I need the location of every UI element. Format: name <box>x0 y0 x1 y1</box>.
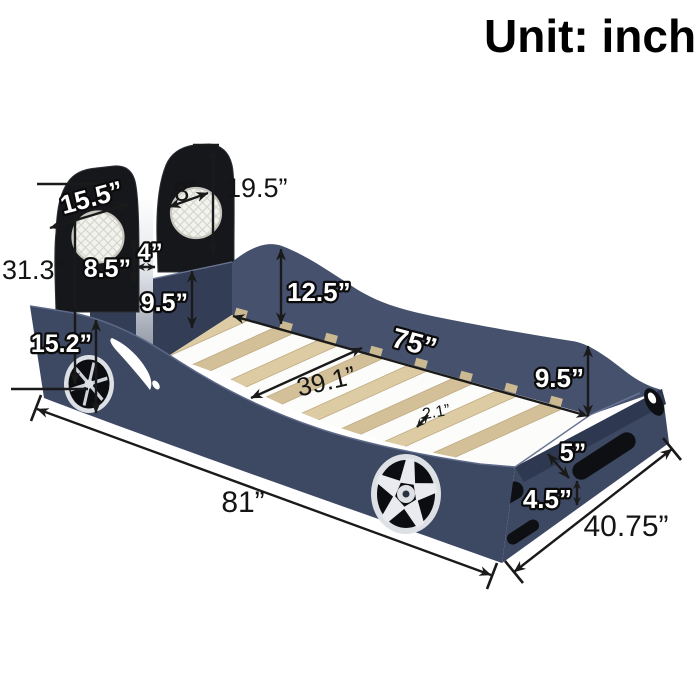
label-side-rail-height: 12.5” <box>287 277 351 307</box>
car-bed-diagram: 31.3” 15.5” 8” 19.5” 8.5” 4” 9.5” <box>0 0 700 700</box>
label-foot-inner-height: 5” <box>560 439 586 467</box>
rear-wheel-decal <box>371 454 441 534</box>
unit-label: Unit: inch <box>484 10 696 62</box>
front-wheel-decal <box>64 355 114 413</box>
product-dimension-diagram: 31.3” 15.5” 8” 19.5” 8.5” 4” 9.5” <box>0 0 700 700</box>
front-wheel-hub <box>85 380 94 389</box>
label-overall-width: 40.75” <box>583 510 668 543</box>
label-foot-base-height: 4.5” <box>523 484 572 514</box>
label-headrest-height: 19.5” <box>226 173 288 203</box>
dim-gap-width: 4” <box>137 239 163 267</box>
label-headboard-to-slat: 9.5” <box>141 289 188 317</box>
right-headrest <box>157 144 234 272</box>
label-overall-height: 31.3” <box>2 255 64 285</box>
label-gap-height: 8.5” <box>84 255 131 283</box>
dim-foot-base-height: 4.5” <box>523 481 577 514</box>
label-foot-rail-height: 9.5” <box>535 363 584 393</box>
rear-wheel-hub-center <box>403 491 410 498</box>
label-headrest-pad: 8” <box>172 175 200 208</box>
label-gap-width: 4” <box>137 239 162 266</box>
label-front-panel-height: 15.2” <box>31 330 92 358</box>
label-overall-length: 81” <box>221 486 264 519</box>
